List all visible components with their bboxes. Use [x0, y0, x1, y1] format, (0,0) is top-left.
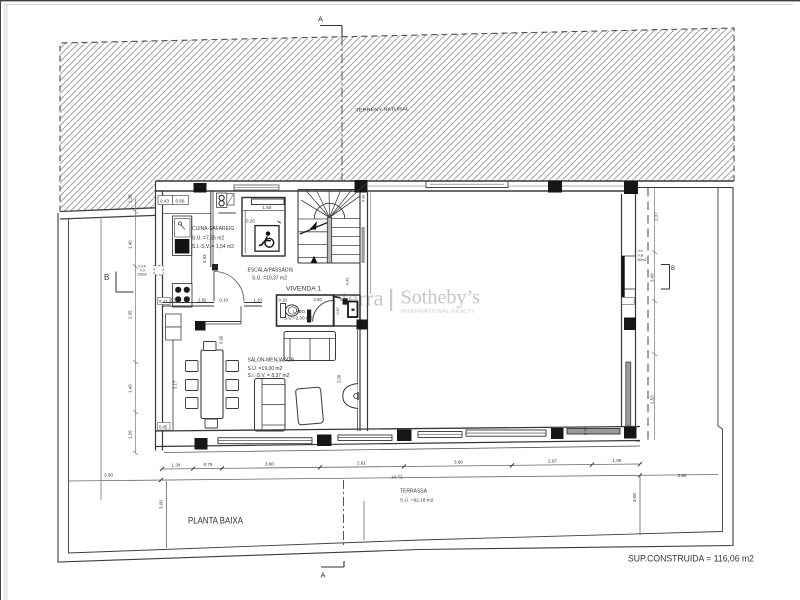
- svg-text:1.38: 1.38: [128, 194, 133, 203]
- svg-text:V.B: V.B: [638, 254, 644, 258]
- svg-text:1.34: 1.34: [172, 463, 181, 468]
- svg-text:3.17: 3.17: [173, 380, 178, 389]
- svg-text:S.Ú. =10,37 m2: S.Ú. =10,37 m2: [252, 275, 287, 282]
- svg-text:0.66: 0.66: [176, 198, 185, 203]
- svg-text:1.06: 1.06: [613, 458, 622, 463]
- svg-text:PLANTA BAIXA: PLANTA BAIXA: [188, 516, 244, 527]
- svg-text:3.90: 3.90: [265, 462, 274, 467]
- svg-text:S.Ú. =7,65 m2: S.Ú. =7,65 m2: [192, 235, 224, 242]
- svg-text:0.20: 0.20: [302, 189, 309, 193]
- svg-text:ESCALA/PASSADIS: ESCALA/PASSADIS: [248, 268, 294, 274]
- svg-text:B: B: [104, 273, 109, 282]
- svg-text:2.53: 2.53: [650, 395, 655, 404]
- svg-text:1.50: 1.50: [263, 205, 272, 210]
- svg-text:0.87: 0.87: [336, 307, 340, 314]
- svg-text:14.72: 14.72: [391, 475, 403, 480]
- svg-text:INTERNATIONAL REALTY: INTERNATIONAL REALTY: [401, 309, 476, 315]
- svg-text:1.10: 1.10: [254, 298, 263, 303]
- svg-text:2.95: 2.95: [128, 310, 133, 319]
- svg-text:CUINA-SAFAREIG: CUINA-SAFAREIG: [192, 226, 234, 232]
- svg-text:0.10: 0.10: [279, 298, 288, 303]
- svg-text:3.00: 3.00: [632, 493, 637, 502]
- svg-text:50m2: 50m2: [638, 258, 647, 262]
- svg-text:V.5: V.5: [638, 249, 643, 253]
- svg-text:3.80: 3.80: [678, 473, 687, 478]
- svg-text:3.00: 3.00: [159, 500, 164, 509]
- svg-text:1.49: 1.49: [128, 384, 133, 393]
- svg-text:TERRASSA: TERRASSA: [400, 489, 428, 495]
- svg-text:S.Ú.=2,00 m2: S.Ú.=2,00 m2: [284, 314, 313, 320]
- svg-text:0.79: 0.79: [204, 462, 213, 467]
- svg-text:VIVENDA 1: VIVENDA 1: [286, 286, 321, 293]
- svg-text:4.93: 4.93: [202, 254, 207, 263]
- svg-text:2.37: 2.37: [654, 212, 659, 221]
- svg-text:S.I.-S.V. = 1,54 m2: S.I.-S.V. = 1,54 m2: [192, 244, 234, 250]
- svg-text:0.45: 0.45: [159, 424, 168, 429]
- svg-text:1.40: 1.40: [128, 240, 133, 249]
- svg-text:A: A: [318, 15, 323, 24]
- svg-text:SUP.CONSTRUIDA = 116,06 m2: SUP.CONSTRUIDA = 116,06 m2: [628, 554, 754, 564]
- svg-text:LABO: LABO: [293, 309, 306, 314]
- svg-text:S.Ú. =92,18 m2: S.Ú. =92,18 m2: [400, 497, 434, 504]
- svg-text:0.30: 0.30: [362, 195, 366, 202]
- svg-text:2.02: 2.02: [170, 298, 179, 303]
- svg-text:2.82: 2.82: [198, 298, 207, 303]
- svg-text:0.43: 0.43: [160, 198, 169, 203]
- svg-text:S.Ú. =19,00 m2: S.Ú. =19,00 m2: [248, 365, 283, 372]
- svg-text:0.45: 0.45: [583, 426, 588, 435]
- svg-text:0.90: 0.90: [219, 335, 224, 344]
- svg-text:A: A: [321, 571, 326, 580]
- svg-text:1.26: 1.26: [128, 430, 133, 439]
- svg-text:3.60: 3.60: [454, 460, 463, 465]
- svg-text:TERRENY NATURAL: TERRENY NATURAL: [355, 106, 409, 113]
- svg-text:1.49: 1.49: [650, 273, 655, 282]
- svg-text:2.50: 2.50: [314, 297, 323, 302]
- svg-text:3.00: 3.00: [104, 473, 113, 478]
- svg-text:Sotheby’s: Sotheby’s: [401, 287, 481, 309]
- svg-text:0.90: 0.90: [346, 278, 350, 285]
- svg-text:2.08: 2.08: [337, 374, 342, 383]
- svg-text:2.97: 2.97: [548, 459, 557, 464]
- svg-text:2.81: 2.81: [357, 461, 366, 466]
- svg-text:0.10: 0.10: [220, 298, 229, 303]
- svg-text:100cm: 100cm: [137, 273, 147, 277]
- svg-text:B: B: [671, 266, 675, 272]
- svg-text:0.20: 0.20: [246, 219, 255, 224]
